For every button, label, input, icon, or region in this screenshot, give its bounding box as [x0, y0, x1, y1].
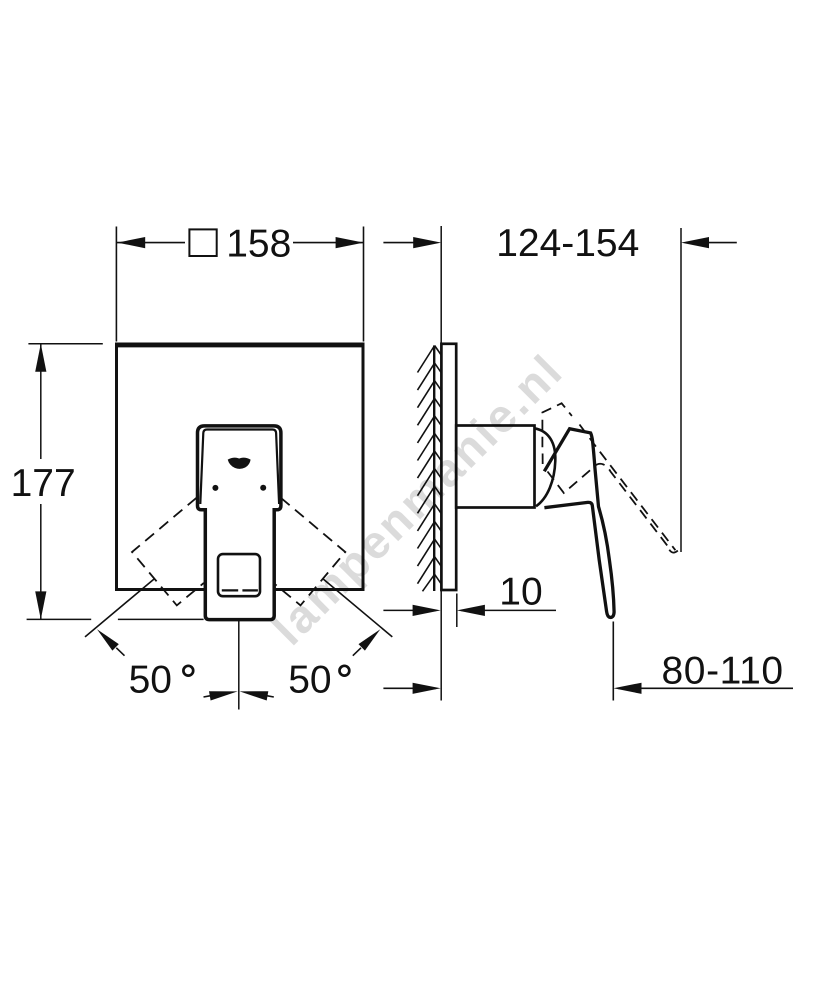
svg-text:80-110: 80-110 [662, 650, 784, 693]
svg-text:124-154: 124-154 [496, 222, 639, 265]
svg-text:50: 50 [288, 659, 331, 702]
svg-text:50: 50 [129, 659, 172, 702]
svg-text:177: 177 [11, 462, 76, 505]
svg-text:10: 10 [499, 570, 542, 613]
svg-text:158: 158 [226, 222, 291, 265]
